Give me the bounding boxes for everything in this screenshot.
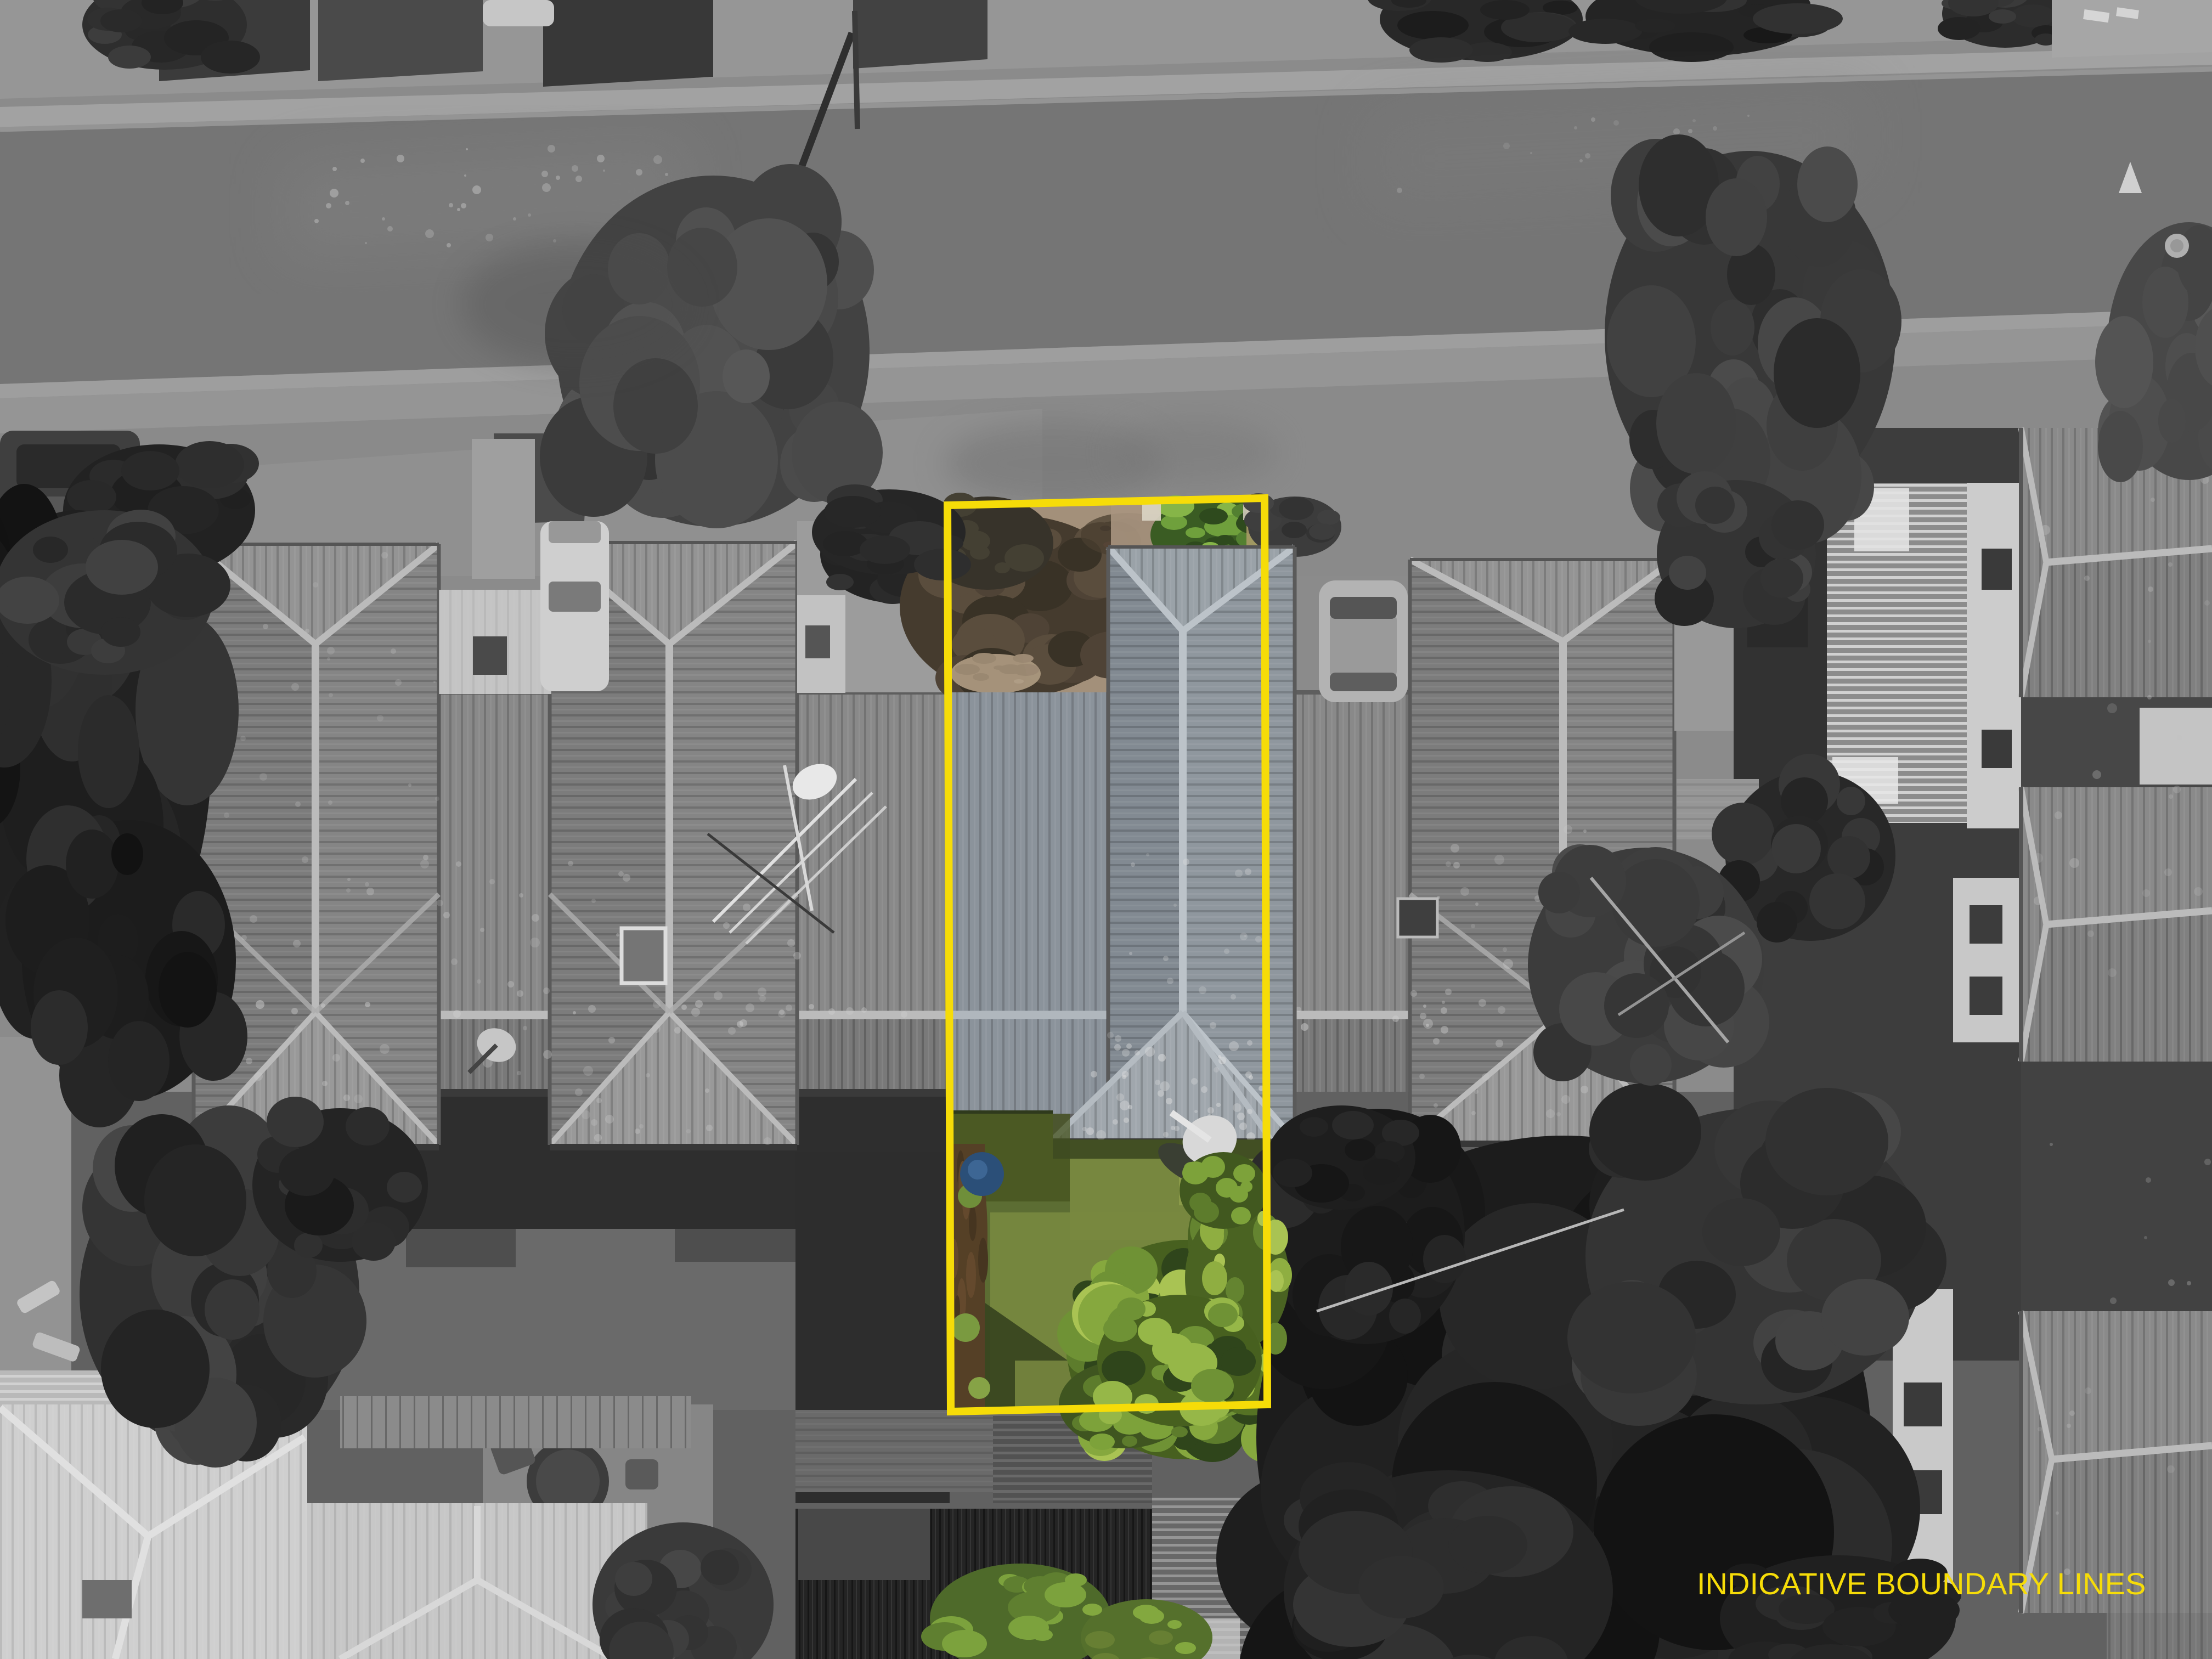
svg-text:INDICATIVE BOUNDARY LINES: INDICATIVE BOUNDARY LINES <box>1697 1566 2146 1601</box>
